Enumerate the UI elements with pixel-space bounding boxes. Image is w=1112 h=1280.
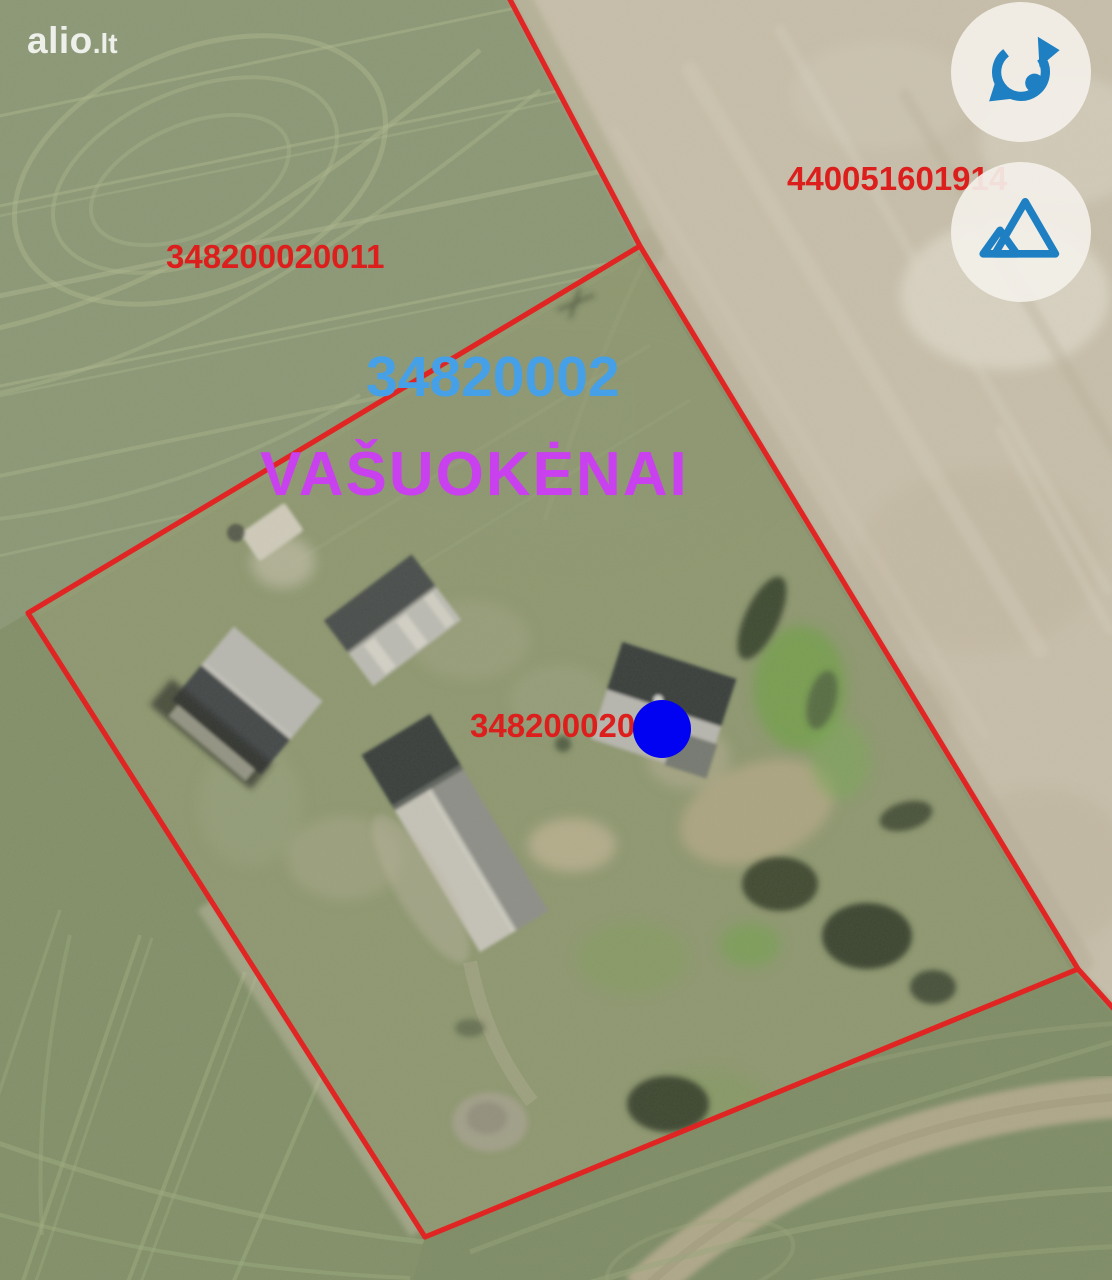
site-logo-text: alio: [27, 20, 93, 62]
site-logo: alio.lt: [27, 20, 118, 62]
location-marker[interactable]: [633, 700, 691, 758]
rotate-button[interactable]: [951, 2, 1091, 142]
parcel-number-label-center: 348200020: [470, 709, 635, 742]
terrain-button[interactable]: [951, 162, 1091, 302]
mountains-icon: [979, 190, 1063, 274]
rotate-arrow-icon: [979, 30, 1063, 114]
site-logo-suffix: .lt: [93, 28, 118, 60]
aerial-map[interactable]: 348200020011 440051601914 34820002 VAŠUO…: [0, 0, 1112, 1280]
cadastral-block-label: 34820002: [366, 349, 620, 406]
parcel-number-label-left: 348200020011: [166, 240, 384, 273]
settlement-name-label: VAŠUOKĖNAI: [260, 444, 689, 506]
